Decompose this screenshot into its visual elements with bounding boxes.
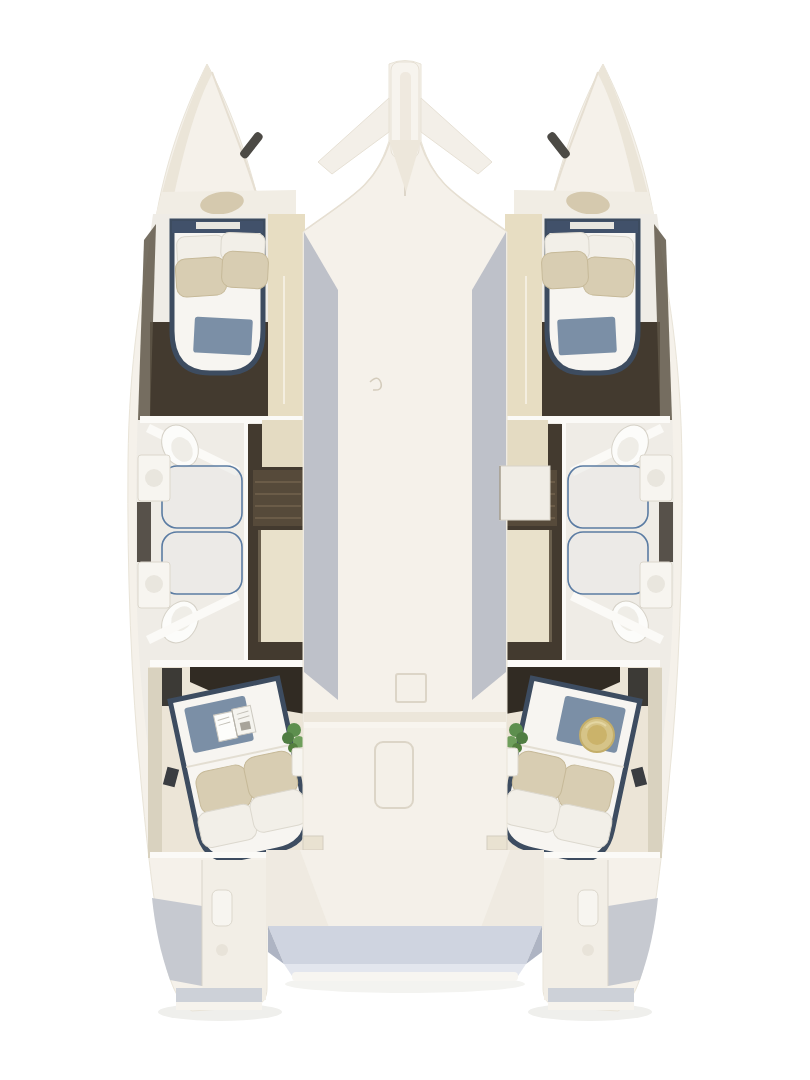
- straw-hat: [580, 718, 614, 752]
- square-hatch: [396, 674, 426, 702]
- transom-platform: [202, 860, 266, 1004]
- blue-throw: [193, 317, 253, 356]
- headboard-shelf-items: [196, 222, 240, 229]
- deck-filler-cap: [216, 944, 228, 956]
- coachroof-shadow-port: [304, 232, 338, 700]
- cabin-entry-hatch-starboard: [487, 836, 507, 850]
- step-rim: [176, 1002, 262, 1010]
- cleat: [212, 890, 232, 926]
- mirror-cabinet: [137, 502, 151, 562]
- wardrobe: [268, 214, 305, 420]
- center-nacelle: [303, 61, 507, 977]
- anchor-wing-starboard: [421, 98, 492, 174]
- shower-forward: [162, 466, 242, 528]
- catamaran-floorplan: [0, 0, 810, 1080]
- sink-bowl: [145, 469, 163, 487]
- long-hatch: [375, 742, 413, 808]
- corridor-wardrobe: [262, 420, 305, 467]
- cockpit-floor: [268, 926, 542, 964]
- shower-aft: [162, 532, 242, 594]
- stair-cover: [500, 466, 550, 520]
- aft-deck-cockpit: [266, 836, 544, 981]
- cabin-entry-hatch-port: [303, 836, 323, 850]
- stern-rim: [292, 972, 518, 981]
- cabinet-edge: [258, 530, 261, 642]
- anchor-wing-port: [318, 98, 389, 174]
- companionway: [248, 420, 305, 664]
- wall: [150, 660, 305, 667]
- deck-step-highlight: [304, 722, 506, 728]
- sink-bowl: [145, 575, 163, 593]
- deck-step-band: [304, 712, 506, 722]
- side-ledge: [148, 668, 162, 858]
- corridor-cabinet: [258, 530, 305, 642]
- aft-cabin: [148, 660, 316, 865]
- swim-step: [176, 988, 262, 1004]
- pillow-beige: [221, 251, 269, 289]
- pillow-beige: [175, 256, 228, 297]
- transom-recess: [152, 898, 202, 986]
